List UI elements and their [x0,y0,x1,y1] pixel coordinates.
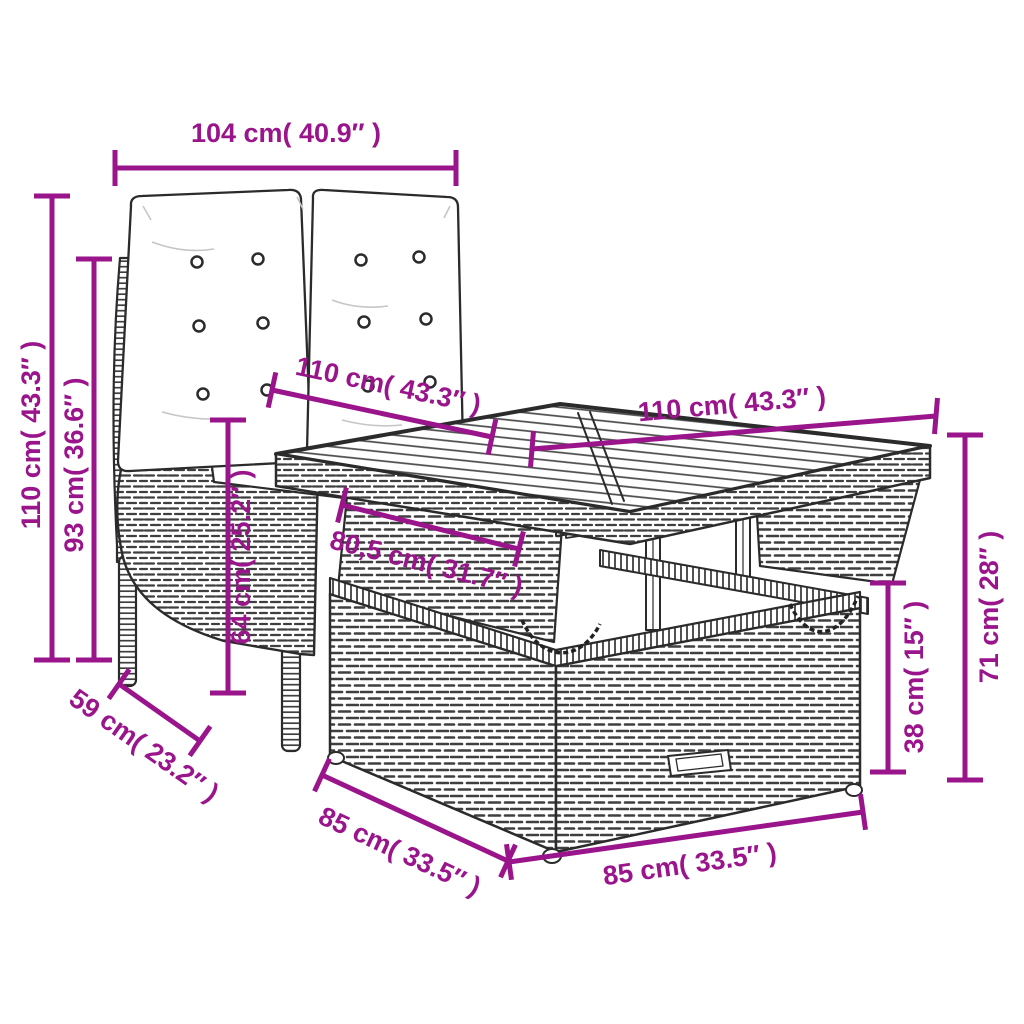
dimension-label: 38 cm( 15″ ) [899,601,929,754]
dimension-label: 85 cm( 33.5″ ) [314,801,485,902]
bench-front-leg [282,645,300,751]
dimension-backrest-width: 104 cm( 40.9″ ) [115,118,456,186]
dimension-label: 104 cm( 40.9″ ) [191,118,381,148]
dimension-table-height: 71 cm( 28″ ) [947,435,1004,780]
dimension-label: 71 cm( 28″ ) [974,531,1004,684]
dimension-bench-backrest-height: 93 cm( 36.6″ ) [59,259,112,660]
dimension-table-base-height: 38 cm( 15″ ) [870,583,929,772]
back-cushion-left [118,190,311,471]
dimension-label: 64 cm( 25.2″ ) [226,469,256,644]
dimension-label: 110 cm( 43.3″ ) [16,341,46,530]
dimension-diagram: 104 cm( 40.9″ ) 110 cm( 43.3″ ) 93 cm( 3… [0,0,1024,1024]
table-illustration [276,404,930,863]
dimension-label: 93 cm( 36.6″ ) [59,377,89,552]
dimension-label: 110 cm( 43.3″ ) [637,381,827,427]
back-cushion-right [307,190,463,461]
diagram-canvas: 104 cm( 40.9″ ) 110 cm( 43.3″ ) 93 cm( 3… [0,0,1024,1024]
dimension-bench-depth: 59 cm( 23.2″ ) [64,669,225,808]
